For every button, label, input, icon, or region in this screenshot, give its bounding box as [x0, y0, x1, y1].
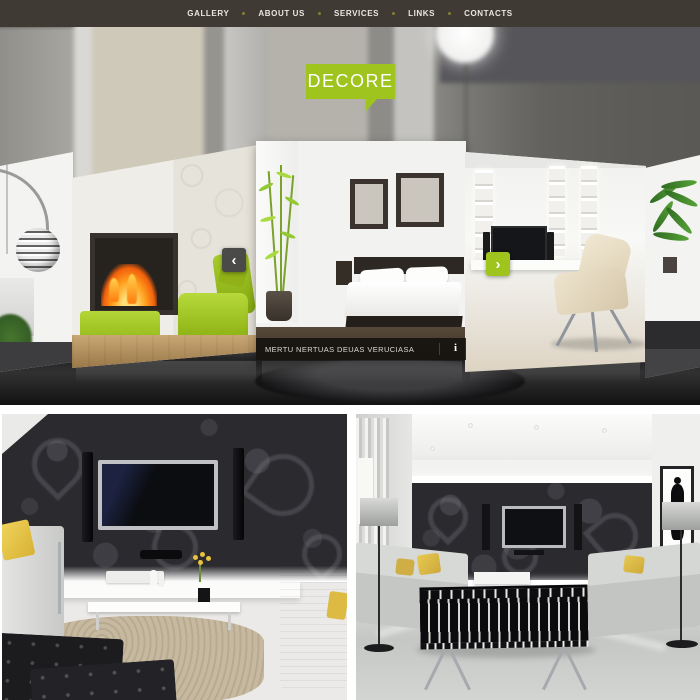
nav-item-contacts[interactable]: CONTACTS: [464, 9, 513, 18]
nav-separator-dot: [242, 12, 245, 15]
yellow-pillow: [395, 558, 415, 576]
silhouette-head: [674, 477, 681, 484]
slide-arc-lamp-room[interactable]: [0, 152, 73, 372]
chair-shadow: [551, 338, 646, 350]
yellow-flower: [200, 552, 205, 557]
recessed-light: [430, 446, 435, 451]
white-deco-vases: [150, 570, 157, 586]
flame-tongue: [127, 274, 137, 304]
nav-item-links[interactable]: LINKS: [408, 9, 435, 18]
bamboo-stem: [280, 165, 282, 295]
nav-separator-dot: [392, 12, 395, 15]
wall-mounted-tv: [98, 460, 218, 530]
recessed-light: [468, 423, 473, 428]
nav-separator-dot: [448, 12, 451, 15]
logo-bubble-tail: [366, 99, 377, 111]
nav-separator-dot: [318, 12, 321, 15]
plant-pot: [663, 257, 677, 273]
white-media-ledge: [52, 582, 300, 598]
gray-sofa-right: [588, 542, 700, 638]
yellow-flower: [193, 555, 198, 560]
yellow-pillow: [417, 553, 442, 576]
bed-duvet: [344, 282, 462, 319]
slide-caption-bar: MERTU NERTUAS DEUAS VERUCIASA i: [256, 338, 466, 360]
slide-caption-text: MERTU NERTUAS DEUAS VERUCIASA: [256, 345, 414, 354]
yellow-pillow: [326, 591, 347, 620]
nav-item-services[interactable]: SERVICES: [334, 9, 379, 18]
info-icon[interactable]: i: [454, 342, 457, 354]
soundbar: [514, 550, 544, 555]
black-slatted-bench: [419, 585, 588, 650]
wall-picture-frame: [350, 179, 388, 229]
lime-chair-seat: [178, 293, 248, 339]
site-logo[interactable]: DECORE: [306, 64, 395, 99]
bottom-gallery: [0, 405, 700, 700]
slide-palm-corner[interactable]: [645, 155, 700, 378]
soundbar: [140, 550, 182, 559]
slider-next-button[interactable]: ›: [486, 252, 510, 276]
table-leg: [96, 612, 99, 630]
panel-reflection: [262, 361, 462, 383]
wall-mounted-tv: [502, 506, 566, 548]
slider-prev-button[interactable]: ‹: [222, 248, 246, 272]
yellow-flower: [198, 560, 203, 565]
wall-picture-frame: [396, 173, 444, 227]
fireplace: [90, 233, 178, 315]
floor-lamp-shade: [662, 502, 700, 530]
speaker: [482, 504, 490, 550]
recessed-light: [602, 428, 607, 433]
speaker: [574, 504, 582, 550]
nav-item-about-us[interactable]: ABOUT US: [258, 9, 305, 18]
slide-bedroom[interactable]: [256, 141, 466, 360]
palm-frond: [653, 231, 690, 243]
palm-frond: [664, 205, 694, 236]
yellow-pillow: [623, 555, 645, 574]
tall-speaker: [233, 448, 244, 540]
white-coffee-table: [474, 572, 530, 584]
floor-lamp-base: [666, 640, 698, 648]
dark-console: [645, 321, 700, 349]
recessed-light: [534, 425, 539, 430]
bench-slats: [420, 597, 589, 644]
floor-lamp-pole: [680, 530, 682, 642]
chrome-sofa-frame: [58, 542, 61, 614]
damask-flourish: [240, 442, 326, 528]
table-leg: [228, 612, 231, 630]
photo-living-room-damask-wall: [2, 414, 347, 700]
floor-lamp-shade: [360, 498, 398, 526]
arc-lamp-sphere-shade: [16, 228, 60, 272]
tv-screen-glint: [102, 464, 214, 526]
flame-tongue: [109, 278, 119, 302]
gray-sofa-right: [280, 556, 347, 688]
damask-flourish: [420, 489, 477, 546]
floor-lamp-pole: [378, 526, 380, 646]
yellow-flower: [206, 556, 211, 561]
plant-vase: [266, 291, 292, 321]
cream-lounge-chair-seat: [553, 266, 629, 315]
small-black-frame: [198, 588, 210, 603]
white-coffee-table: [88, 602, 240, 612]
hero-slider-section: DECORE ‹ › MERTU NERTUAS DEUAS VERUCIASA…: [0, 27, 700, 405]
tall-speaker: [82, 452, 93, 542]
floor-lamp-base: [364, 644, 394, 652]
caption-divider: [439, 343, 440, 355]
nav-item-gallery[interactable]: GALLERY: [187, 9, 229, 18]
cove-light-strip: [406, 476, 652, 483]
palm-frond: [661, 179, 698, 191]
top-navigation: GALLERY ABOUT US SERVICES LINKS CONTACTS: [0, 0, 700, 27]
photo-living-room-panorama: [356, 414, 700, 700]
